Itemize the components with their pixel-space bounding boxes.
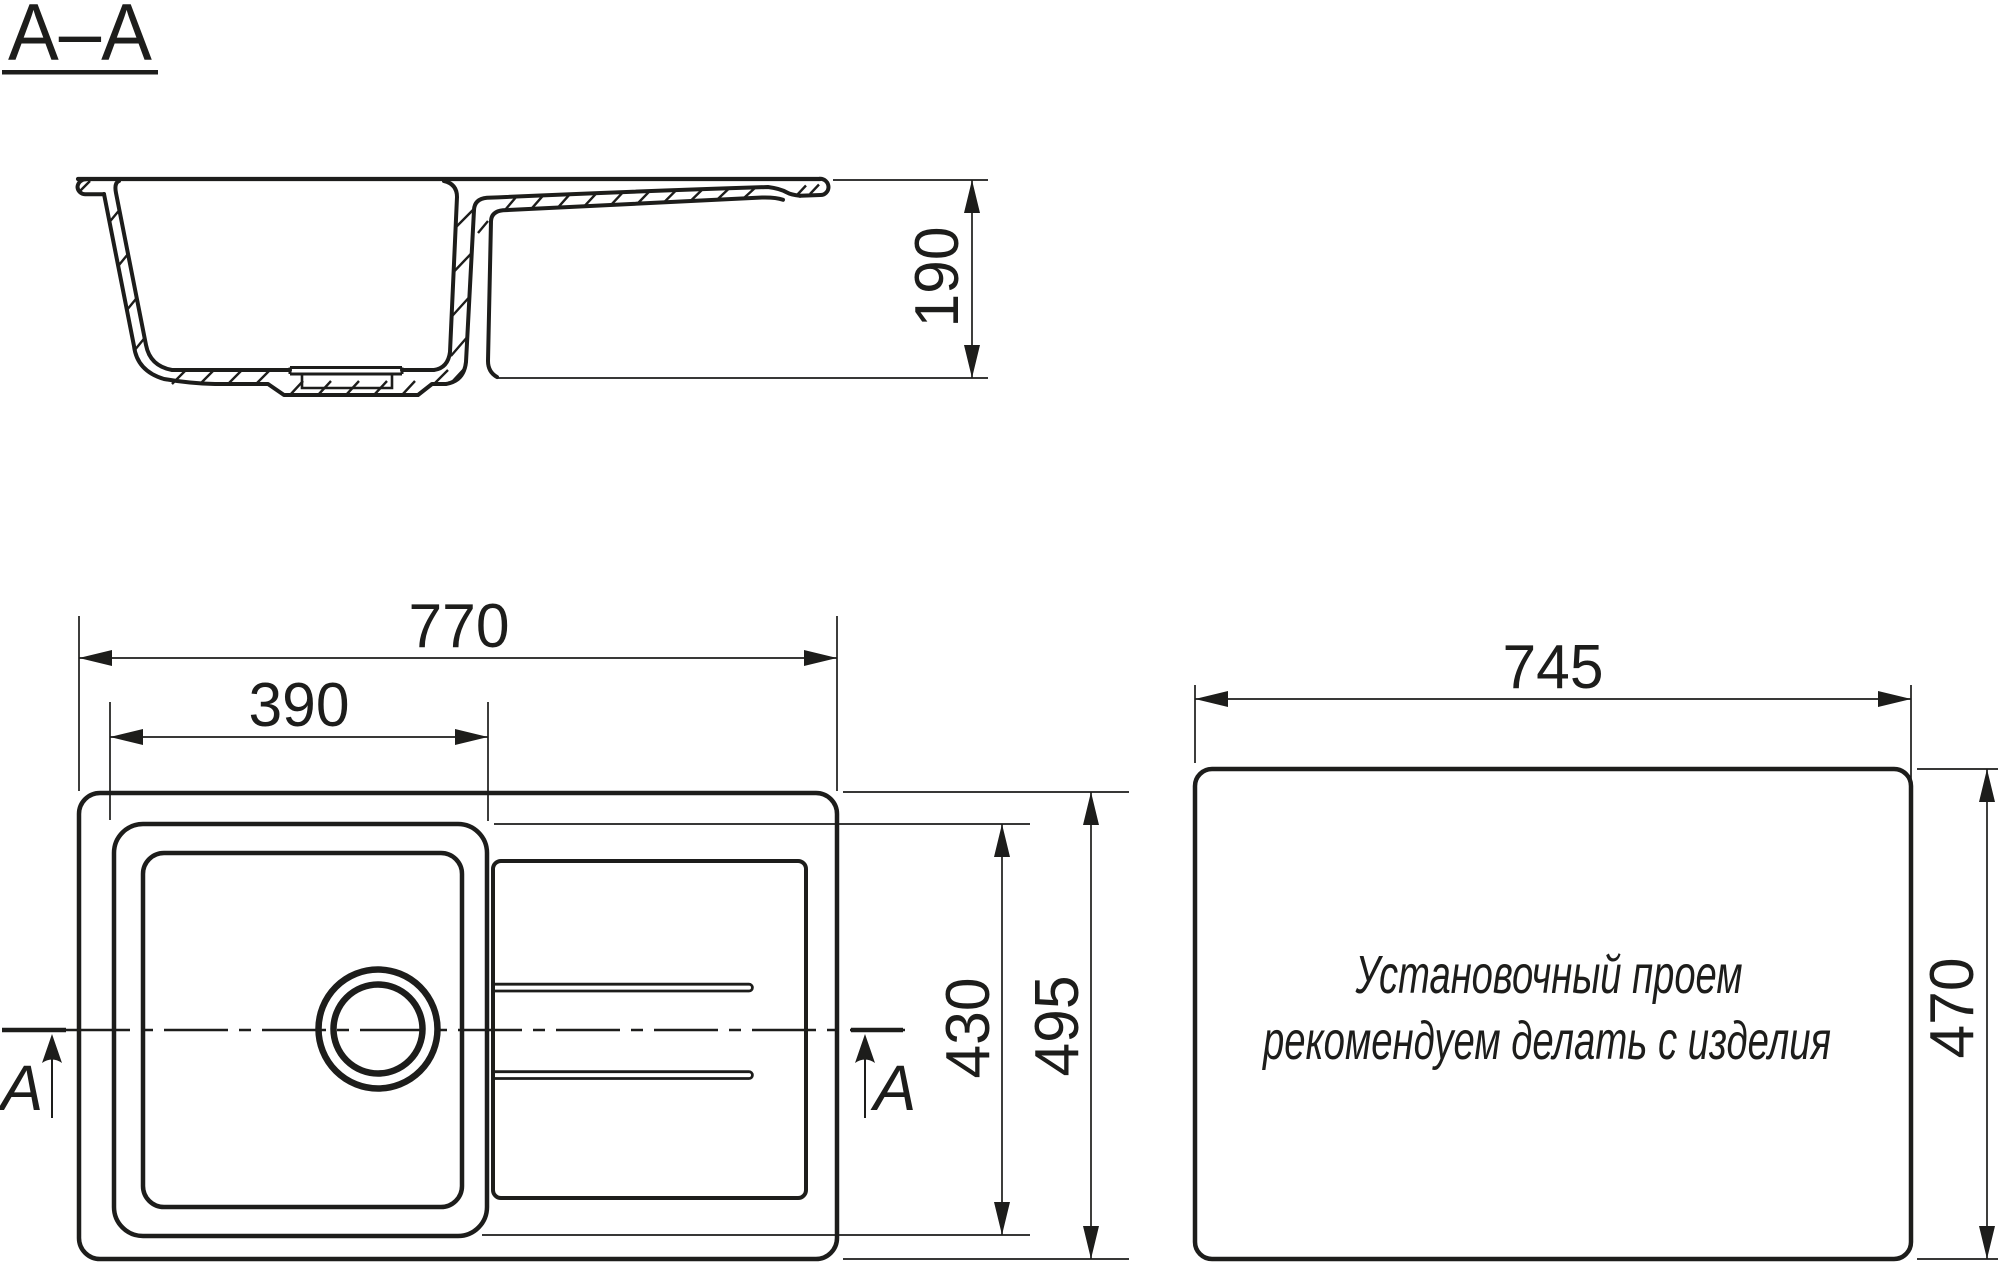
svg-text:Установочный проем: Установочный проем	[1355, 945, 1743, 1005]
svg-text:770: 770	[409, 592, 510, 661]
svg-text:470: 470	[1918, 958, 1987, 1059]
svg-text:745: 745	[1503, 633, 1604, 702]
svg-text:390: 390	[249, 671, 350, 740]
svg-text:A–A: A–A	[8, 0, 152, 78]
svg-text:A: A	[0, 1052, 43, 1124]
svg-text:430: 430	[934, 978, 1003, 1079]
svg-text:рекомендуем делать с изделия: рекомендуем делать с изделия	[1262, 1011, 1831, 1071]
svg-text:A: A	[870, 1052, 917, 1124]
svg-text:190: 190	[903, 227, 972, 328]
svg-text:495: 495	[1023, 976, 1092, 1077]
